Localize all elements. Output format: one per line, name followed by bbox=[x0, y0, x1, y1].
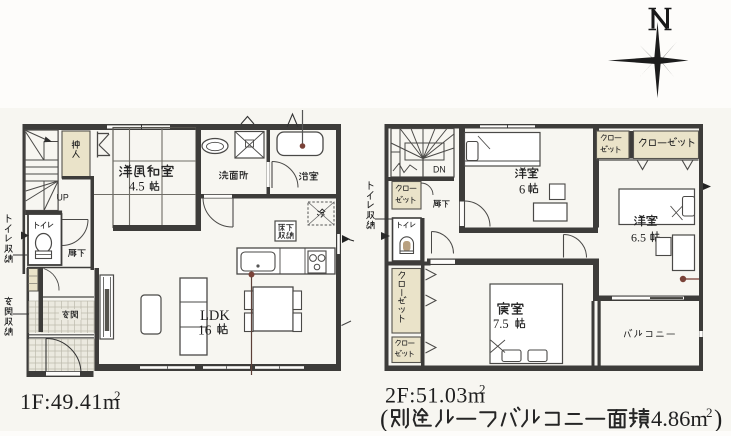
svg-text:16: 16 bbox=[198, 323, 212, 338]
svg-text:4.86m: 4.86m bbox=[651, 406, 708, 431]
svg-text:7.5: 7.5 bbox=[493, 317, 509, 331]
svg-text:6.5: 6.5 bbox=[631, 231, 646, 245]
svg-text:(: ( bbox=[380, 406, 388, 431]
svg-text:6: 6 bbox=[519, 183, 525, 197]
svg-text:2: 2 bbox=[706, 405, 713, 420]
svg-text:1F:49.41m: 1F:49.41m bbox=[20, 389, 120, 414]
svg-text:2: 2 bbox=[479, 382, 486, 397]
svg-text:2F:51.03m: 2F:51.03m bbox=[385, 383, 485, 408]
svg-text:DN: DN bbox=[433, 165, 446, 175]
svg-text:2: 2 bbox=[114, 388, 121, 403]
svg-text:): ) bbox=[714, 406, 722, 431]
svg-text:UP: UP bbox=[57, 193, 69, 203]
svg-text:4.5: 4.5 bbox=[129, 180, 145, 194]
